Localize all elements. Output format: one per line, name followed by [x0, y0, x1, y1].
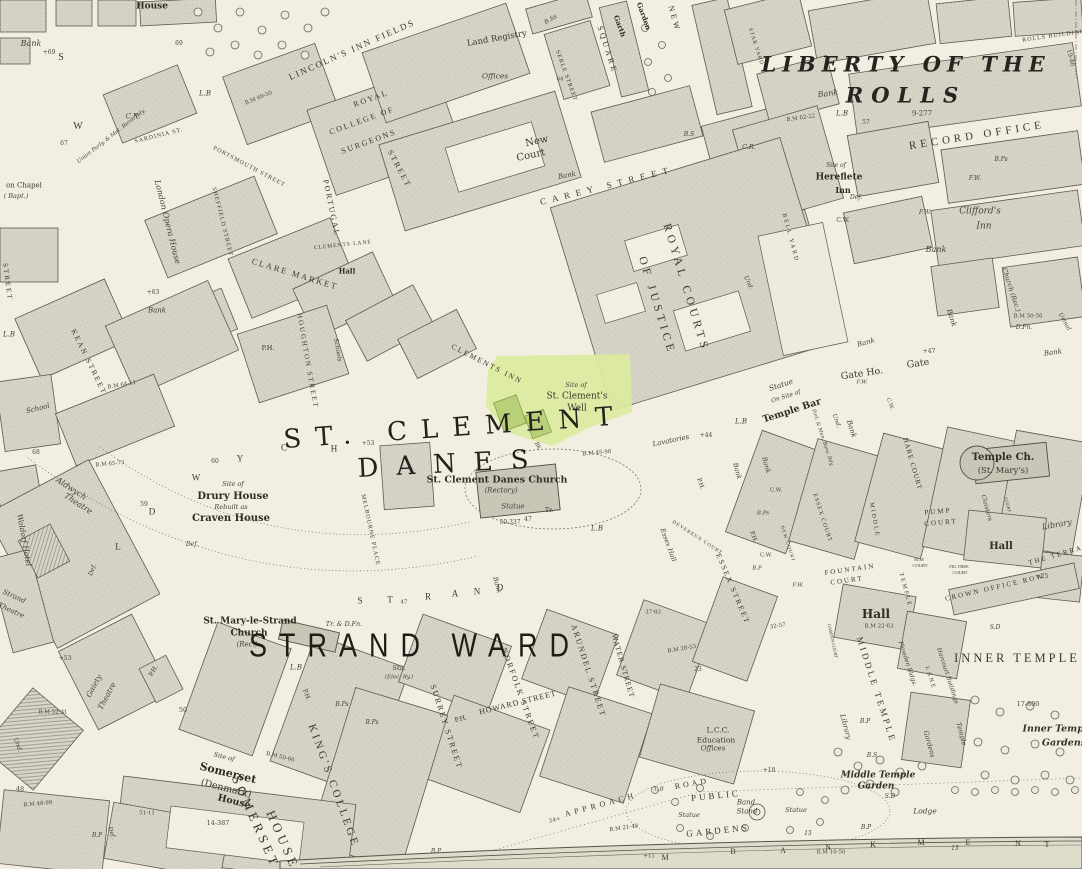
- map-label: Urinal: [1057, 312, 1072, 332]
- label-royal-college-of-surgeons: ROYAL: [352, 89, 389, 109]
- map-label: T: [1045, 841, 1050, 849]
- map-label: Bank: [856, 337, 875, 348]
- map-label: SURREY STREET: [429, 684, 464, 771]
- map-label: C: [281, 444, 287, 453]
- map-label: P.H.: [454, 714, 468, 723]
- map-label: (Rectory): [484, 488, 517, 495]
- map-label: B.M 48-99: [23, 801, 52, 809]
- map-label: NEW COURT: [779, 525, 796, 563]
- map-label: +53: [59, 656, 72, 662]
- label-kings-college: KING'S COLLEGE: [306, 723, 361, 849]
- map-label: Sta.: [392, 665, 405, 672]
- map-label: +25: [1036, 574, 1049, 580]
- label-st-clement-danes-church: St. Clement Danes Church: [427, 475, 568, 485]
- map-label: D: [149, 508, 156, 517]
- label-public-gardens: GARDENS: [686, 823, 750, 839]
- map-label: B.M 50-66: [265, 752, 294, 764]
- map-label: LANE: [924, 666, 937, 691]
- label-temple-church: (St. Mary's): [978, 467, 1029, 476]
- map-label: Bank: [148, 308, 166, 315]
- map-label: 14-387: [207, 820, 230, 827]
- map-label: P.H.: [262, 345, 275, 352]
- map-label: FIG TREE: [949, 565, 969, 570]
- label-temple-church: Temple Ch.: [972, 453, 1035, 463]
- map-label: P.H.: [748, 530, 758, 543]
- map-label: COURT: [913, 564, 928, 569]
- map-label: Def.: [186, 542, 198, 548]
- map-label: Hereflete: [816, 174, 863, 183]
- map-label: 69: [175, 41, 183, 47]
- map-label: Statue: [678, 812, 700, 819]
- map-label: Clifford's: [959, 208, 1001, 217]
- map-label: GARDEN COURT: [826, 623, 838, 658]
- district-label-inner-temple: INNER TEMPLE: [954, 652, 1080, 665]
- map-label: C.R.: [742, 144, 756, 151]
- map-label: STREET: [1, 263, 13, 301]
- map-label: MIDDLE: [868, 502, 880, 538]
- map-label: F.W.: [919, 210, 931, 216]
- label-lcc-education-offices: L.C.C.: [706, 726, 729, 734]
- map-label: Bank: [761, 456, 772, 474]
- map-label: 51-11: [139, 811, 155, 817]
- district-label-strand-ward: STRAND WARD: [249, 630, 581, 663]
- map-label: M: [917, 839, 924, 847]
- map-label: T: [387, 596, 393, 605]
- map-label: 15: [951, 846, 959, 852]
- map-label: Def.: [106, 826, 116, 840]
- map-label: B.Ps: [757, 511, 769, 517]
- label-drury-house: Drury House: [197, 492, 268, 502]
- map-label: ARUNDEL STREET: [569, 624, 607, 719]
- label-band-stand: Stand: [737, 809, 758, 816]
- map-label: Site of: [826, 163, 846, 169]
- map-label: Und.: [831, 413, 842, 429]
- map-label: STAR YARD: [746, 28, 763, 67]
- map-label: P.H.: [695, 477, 705, 490]
- map-label: Garden: [636, 1, 652, 30]
- map-label: Essex Hall: [659, 528, 677, 563]
- map-label: L.B: [199, 91, 211, 98]
- map-label: London Opera House: [153, 179, 182, 265]
- map-label: ( Bapt.): [4, 193, 29, 200]
- map-label: B.M 52-31: [38, 710, 67, 716]
- map-label: B.S: [684, 132, 694, 138]
- map-label: PORTSMOUTH STREET: [212, 145, 286, 188]
- label-gaiety-theatre: Gaiety: [85, 673, 103, 698]
- map-label: Gardens: [922, 730, 935, 758]
- label-middle-temple-garden: Garden: [858, 783, 895, 792]
- map-label: ELM: [914, 558, 924, 563]
- map-label: B.Ss: [544, 14, 559, 26]
- map-label: L.B: [591, 526, 603, 533]
- map-label: L.B: [3, 332, 15, 339]
- label-land-registry: Land Registry: [466, 30, 527, 49]
- map-labels-layer: HouseBank+69SW69C.R.Union Parly. & Met. …: [0, 0, 1082, 869]
- map-label: ROLLS BUILDINGS: [1022, 28, 1082, 43]
- map-label: B.P: [860, 719, 870, 725]
- map-label: on Chapel: [6, 183, 42, 190]
- map-label: N: [825, 844, 831, 852]
- map-label: CLEMENTS LANE: [314, 240, 372, 252]
- map-label: A: [452, 590, 459, 599]
- map-label: KEAN STREET: [70, 328, 108, 396]
- map-label: L.B: [654, 787, 663, 793]
- label-inner-temple-gardens: Gardens: [1042, 738, 1082, 748]
- map-label: (Elec. Ry.): [385, 675, 413, 681]
- map-label: Temple: [955, 722, 967, 747]
- map-label: C.W.: [770, 488, 782, 494]
- map-label: 9-277: [912, 111, 932, 118]
- map-label: 48: [16, 786, 24, 793]
- map-label: K: [870, 841, 876, 849]
- label-band-stand: Band: [737, 800, 755, 807]
- label-record-office: RECORD OFFICE: [908, 120, 1045, 152]
- map-label: Tr.: [545, 508, 553, 514]
- map-label: COURT: [1003, 497, 1011, 513]
- map-canvas: HouseBank+69SW69C.R.Union Parly. & Met. …: [0, 0, 1082, 869]
- map-label: THE TERRACE: [1028, 541, 1082, 567]
- map-label: B.M 21-48: [609, 824, 639, 833]
- map-label: 47: [401, 600, 408, 606]
- map-label: B.M 28-53: [667, 645, 697, 655]
- label-new-court: Court: [516, 148, 546, 164]
- map-label: B.M 45-98: [582, 450, 611, 458]
- map-label: STREET: [386, 149, 412, 189]
- map-label: N: [474, 588, 481, 597]
- map-label: Schools: [332, 338, 342, 362]
- map-label: Statue: [501, 504, 524, 511]
- map-label: W: [192, 474, 201, 483]
- map-label: Y: [237, 455, 244, 464]
- map-label: 64: [557, 77, 564, 83]
- label-somerset-house: Site of: [213, 751, 235, 762]
- map-label: Statue: [785, 807, 807, 814]
- map-label: HOUGHTON STREET: [295, 313, 319, 410]
- district-label-liberty-of-the-rolls: LIBERTY OF THE: [761, 54, 1050, 75]
- label-public-gardens: PUBLIC: [691, 789, 742, 803]
- map-label: ESSEX STREET: [715, 552, 752, 625]
- map-label: D.Fn.: [1016, 325, 1032, 331]
- label-gaiety-theatre: Theatre: [97, 681, 118, 711]
- map-label: A: [780, 847, 786, 855]
- map-label: P.H.: [301, 688, 311, 701]
- map-label: SARDINIA ST.: [134, 127, 184, 145]
- label-drury-house: Craven House: [192, 514, 270, 524]
- map-label: L: [115, 543, 121, 552]
- map-label: Hall: [989, 542, 1013, 552]
- label-middle-temple-hall: Hall: [862, 608, 890, 620]
- label-inner-temple-gardens: Inner Temple: [1023, 724, 1082, 734]
- map-label: Und.: [742, 275, 754, 291]
- map-label: +18: [763, 768, 776, 774]
- map-label: PORTUGAL: [321, 179, 341, 238]
- label-middle-temple-garden: Middle Temple: [841, 772, 916, 781]
- map-label: COURT: [830, 575, 864, 587]
- map-label: TEMPLE: [898, 572, 913, 608]
- map-label: 68: [32, 450, 40, 456]
- label-site-of-st-clements-well: Site of: [565, 382, 586, 389]
- map-label: P.H.: [148, 664, 159, 677]
- map-label: SQUARE: [595, 25, 618, 75]
- map-label: Bank: [21, 40, 42, 48]
- map-label: MELBOURNE PLACE: [359, 494, 380, 566]
- map-label: ESSEX COURT: [811, 493, 832, 543]
- map-label: Def.: [88, 563, 98, 577]
- label-st-mary-le-strand: St. Mary-le-Strand: [203, 618, 296, 627]
- map-label: L.B: [290, 665, 302, 672]
- map-label: C.W.: [836, 218, 849, 224]
- map-label: B.Ps: [335, 702, 348, 708]
- map-label: Garth: [613, 14, 627, 38]
- street-label-lincolns-inn-fields: LINCOLN'S INN FIELDS: [288, 18, 417, 82]
- map-label: S.D: [990, 625, 1001, 631]
- map-label: M: [661, 854, 668, 862]
- map-label: B.Ps: [994, 157, 1007, 163]
- map-label: 23: [694, 667, 702, 673]
- map-label: Bank: [492, 576, 503, 594]
- map-label: L.B: [735, 419, 747, 426]
- map-label: C.W.: [760, 553, 772, 559]
- map-label: B.M 62-22: [786, 114, 816, 123]
- label-royal-courts-of-justice: OF JUSTICE: [636, 255, 677, 356]
- map-label: CLEMENTS INN: [450, 343, 524, 385]
- map-label: Union Parly. & Met. Boro. Bdy.: [77, 109, 147, 166]
- map-label: Lavatories: [652, 434, 690, 449]
- map-label: CROWN OFFICE ROW: [945, 573, 1046, 603]
- map-label: Bank: [557, 171, 576, 181]
- map-label: F.W.: [856, 380, 867, 386]
- map-label: W: [73, 122, 82, 132]
- map-label: DEVEREUX COURT: [671, 520, 723, 556]
- map-label: COURT: [924, 518, 958, 528]
- map-label: B.Ps: [365, 720, 378, 726]
- map-label: B.P: [861, 825, 871, 831]
- map-label: Church (Rec.): [1001, 267, 1021, 313]
- map-label: Gate: [906, 358, 930, 371]
- map-label: Hall: [339, 268, 355, 275]
- map-label: Bank: [845, 419, 857, 438]
- map-label: Cloisters: [980, 494, 993, 522]
- map-label: Plowden Bldgs.: [897, 641, 917, 687]
- map-label: B.P: [92, 833, 102, 839]
- map-label: +15: [643, 854, 655, 860]
- map-label: B.M 50-56: [1013, 314, 1042, 320]
- map-label: +47: [923, 349, 936, 355]
- label-new-court: New: [525, 135, 550, 150]
- map-label: School: [26, 403, 51, 416]
- map-label: APPROACH: [564, 791, 638, 818]
- map-label: 57: [862, 120, 870, 126]
- map-label: Lodge: [913, 807, 937, 815]
- map-label: Bank: [732, 462, 743, 480]
- map-label: B.M 69-50: [245, 91, 274, 107]
- district-label-middle-temple: MIDDLE TEMPLE: [855, 636, 898, 744]
- map-label: House: [136, 3, 168, 12]
- map-label: +63: [147, 290, 160, 296]
- label-lcc-education-offices: Education: [697, 736, 736, 744]
- map-label: COURT: [953, 571, 968, 576]
- map-label: Und.: [12, 737, 23, 753]
- map-label: 50: [179, 707, 187, 714]
- map-label: Inn: [976, 223, 991, 232]
- map-label: ROAD: [674, 777, 710, 791]
- label-drury-house: Rebuilt as: [214, 504, 247, 511]
- map-label: 17-800: [1017, 701, 1040, 708]
- map-label: CLARE MARKET: [251, 257, 339, 291]
- map-label: 67: [60, 141, 68, 147]
- map-label: S: [357, 597, 362, 606]
- map-label: Library: [838, 713, 852, 740]
- map-label: WATER STREET: [610, 633, 636, 699]
- map-label: Bank: [1044, 348, 1063, 357]
- map-label: 15: [804, 831, 812, 837]
- map-label: B.P: [431, 849, 441, 855]
- map-label: Waldorf Hotel: [16, 513, 33, 566]
- label-site-of-st-clements-well: St. Clement's: [547, 393, 608, 402]
- map-label: S.D: [885, 794, 896, 800]
- district-label-liberty-of-the-rolls: ROLLS: [846, 85, 966, 106]
- map-label: E: [966, 839, 971, 847]
- map-label: S: [58, 53, 64, 63]
- label-lcc-education-offices: Offices: [701, 746, 726, 753]
- map-label: Def.: [850, 195, 862, 201]
- map-label: PUMP: [924, 507, 952, 516]
- map-label: B.M 22-63: [864, 624, 893, 630]
- map-label: +69: [43, 50, 56, 56]
- map-label: Bank: [817, 89, 839, 100]
- map-label: 32-57: [770, 623, 787, 631]
- map-label: Inn: [835, 186, 850, 194]
- map-label: SHEFFIELD STREET: [210, 187, 233, 258]
- map-label: BELL YARD: [781, 213, 800, 263]
- map-label: F.W.: [792, 583, 803, 589]
- map-label: Library: [1042, 518, 1073, 531]
- map-label: H: [331, 445, 338, 454]
- map-label: B: [730, 848, 735, 856]
- map-label: 24+: [549, 817, 562, 825]
- map-label: C.W.: [884, 397, 893, 410]
- map-label: B.M 64-11: [107, 381, 137, 391]
- map-label: NEW: [666, 5, 681, 33]
- map-label: 19-46: [1065, 49, 1075, 67]
- map-label: N: [1015, 840, 1021, 848]
- map-label: Bank: [945, 308, 957, 327]
- label-drury-house: Site of: [222, 481, 243, 488]
- map-label: 60: [211, 459, 219, 465]
- map-label: F.W.: [969, 176, 981, 182]
- map-label: B.M 65-73: [95, 461, 124, 469]
- map-label: +53: [362, 441, 375, 447]
- map-label: +44: [700, 433, 713, 439]
- map-label: R: [425, 593, 431, 602]
- map-label: 37-83: [645, 610, 661, 616]
- map-label: 47: [524, 517, 532, 523]
- map-label: B.S: [867, 753, 877, 759]
- map-label: 59: [140, 502, 148, 508]
- map-label: Parl. & Mun. Boro. Bdy.: [810, 409, 833, 467]
- map-label: CAREY STREET: [539, 165, 675, 207]
- map-label: B.P: [752, 566, 762, 572]
- map-label: Offices: [482, 72, 508, 80]
- map-label: HARE COURT: [901, 437, 923, 491]
- map-label: L.B: [836, 111, 848, 118]
- map-label: 50-337: [499, 520, 520, 526]
- map-label: Bank: [926, 246, 947, 254]
